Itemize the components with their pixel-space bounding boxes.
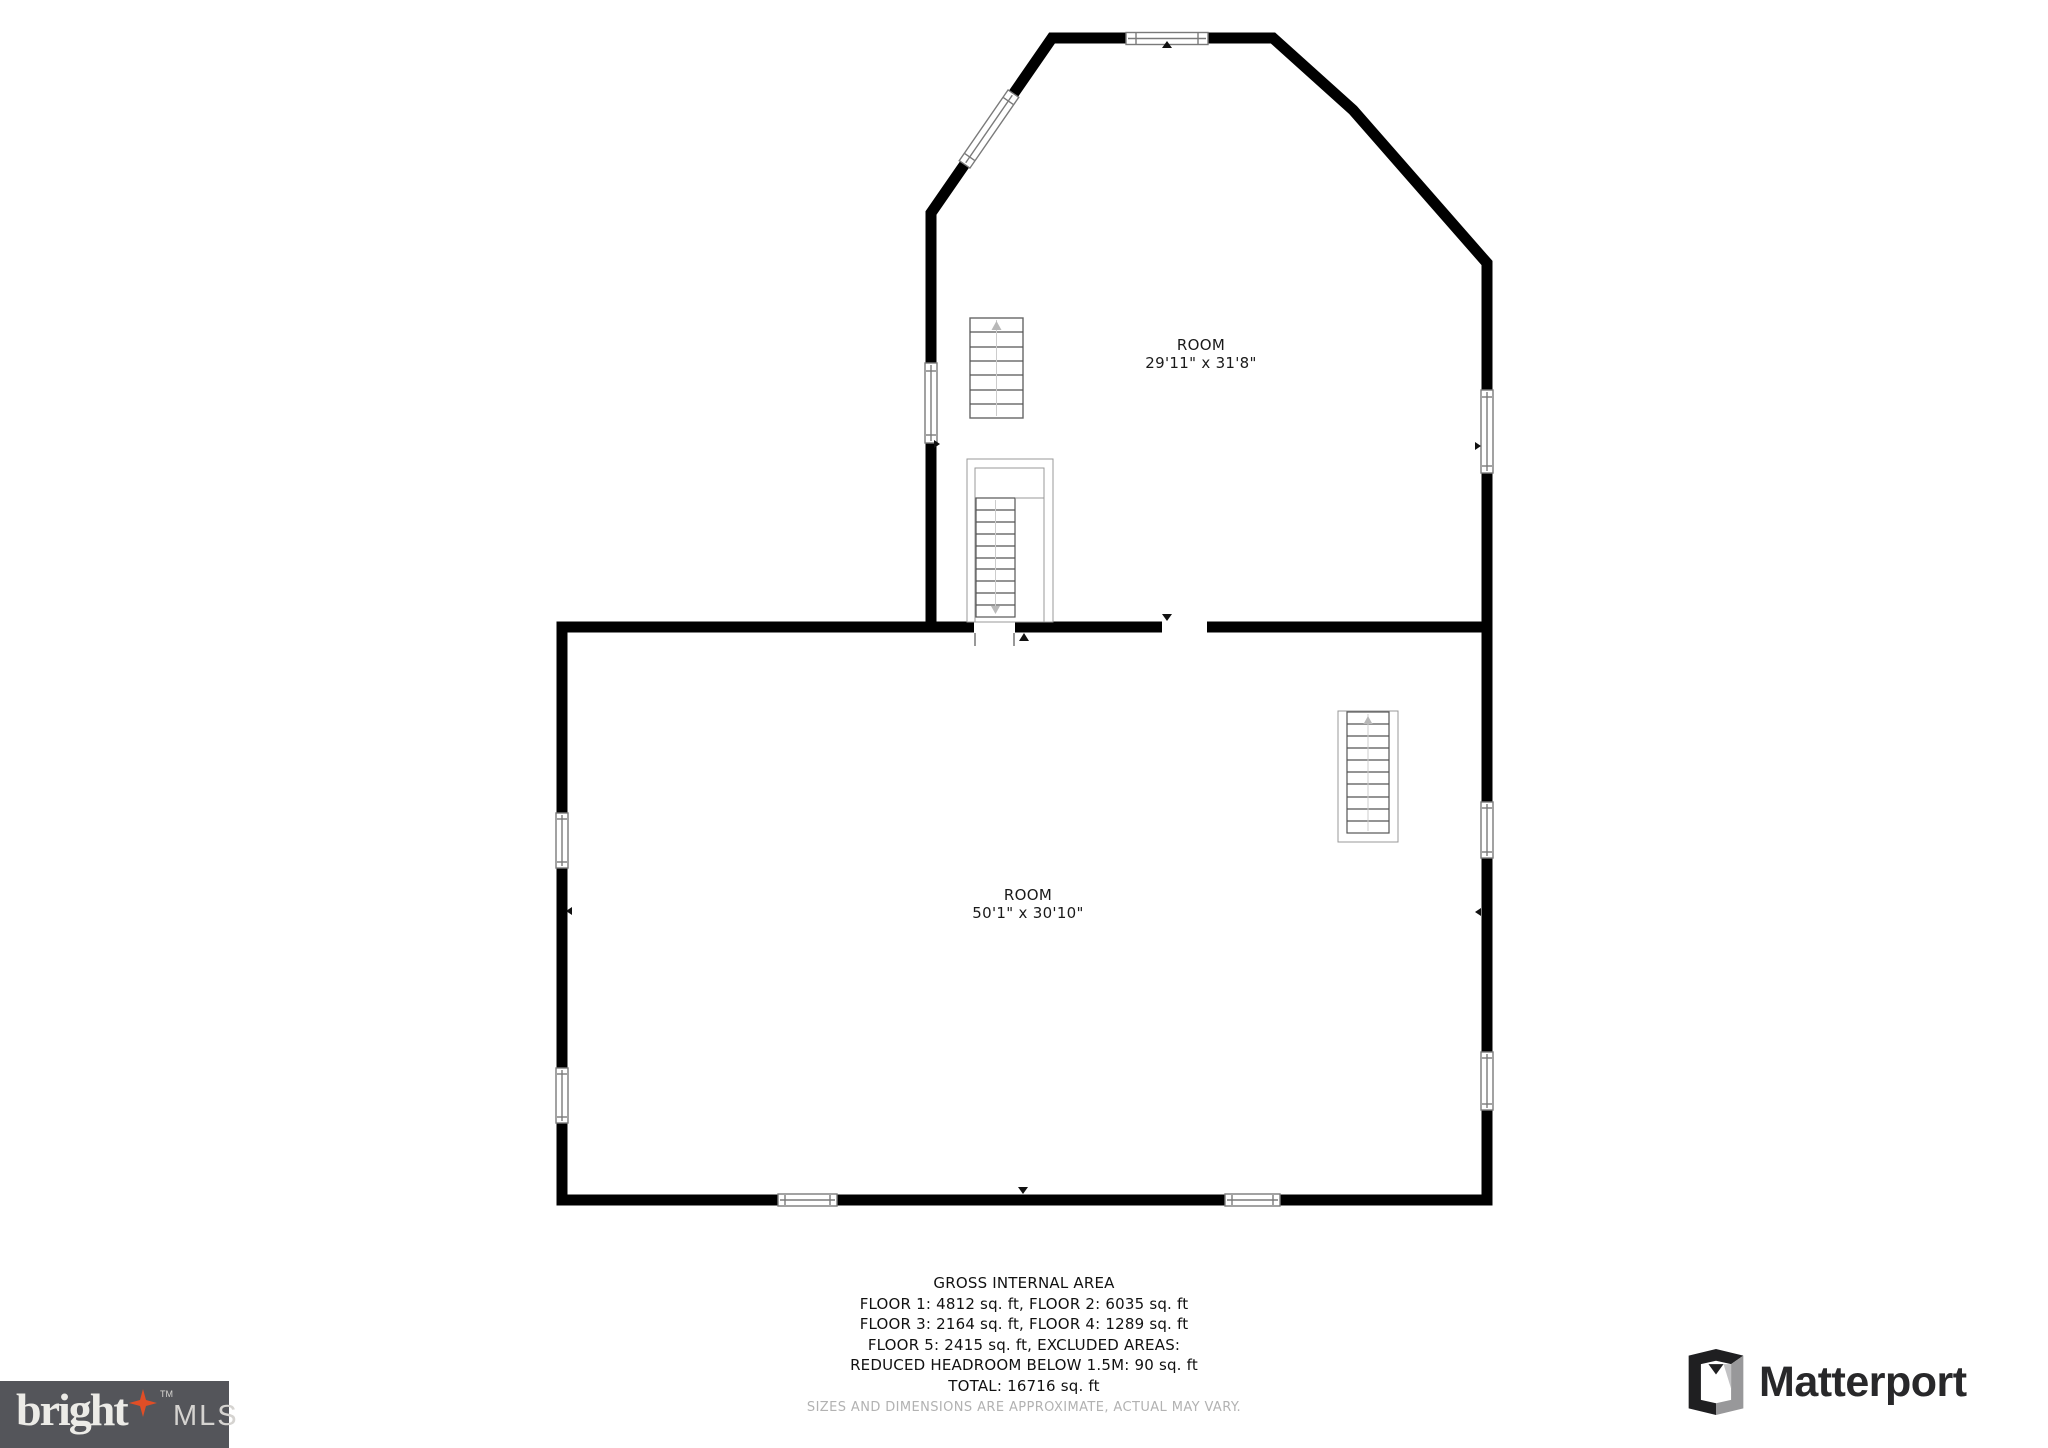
window [556,813,568,868]
window [778,1194,837,1206]
window [1481,1052,1493,1110]
gross-internal-area-title: GROSS INTERNAL AREA [0,1273,2048,1294]
room-dimensions: 29'11" x 31'8" [1145,354,1256,372]
window [1225,1194,1280,1206]
window [1481,390,1493,473]
stairs-bottom-room [1338,711,1398,842]
floor-areas-line: FLOOR 3: 2164 sq. ft, FLOOR 4: 1289 sq. … [0,1314,2048,1335]
room-name: ROOM [1004,886,1052,904]
floor-areas-line: FLOOR 1: 4812 sq. ft, FLOOR 2: 6035 sq. … [0,1294,2048,1315]
mls-wordmark: MLS [173,1400,239,1433]
matterport-icon [1688,1349,1744,1415]
stairs-top-room-lower [967,459,1053,646]
window [925,363,937,443]
star-icon [128,1388,158,1418]
window [1481,802,1493,858]
stair-opening [974,621,1015,633]
matterport-logo: Matterport [1688,1348,1967,1416]
matterport-wordmark: Matterport [1759,1358,1967,1407]
stairs-top-room-upper [970,318,1023,418]
floorplan-canvas: ROOM 29'11" x 31'8" ROOM 50'1" x 30'10" [0,0,2048,1448]
door-opening [1162,621,1207,633]
room-dimensions: 50'1" x 30'10" [972,904,1083,922]
room-name: ROOM [1177,336,1225,354]
bright-wordmark: bright [16,1383,127,1436]
trademark-symbol: TM [160,1389,173,1399]
bright-mls-logo: bright TM MLS [0,1381,229,1448]
window [556,1068,568,1123]
